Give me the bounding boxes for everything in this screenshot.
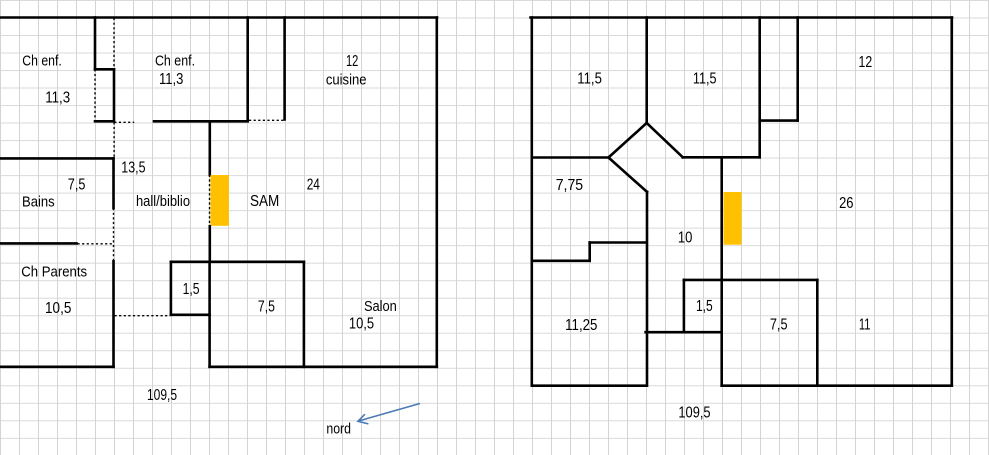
svg-text:11,5: 11,5: [693, 70, 717, 87]
svg-text:10: 10: [678, 229, 693, 246]
svg-text:7,75: 7,75: [556, 177, 583, 194]
svg-text:26: 26: [839, 195, 854, 212]
svg-text:7,5: 7,5: [258, 299, 275, 316]
svg-text:109,5: 109,5: [147, 387, 177, 404]
svg-text:7,5: 7,5: [770, 316, 788, 333]
svg-text:11,25: 11,25: [565, 317, 597, 334]
svg-text:10,5: 10,5: [349, 315, 374, 332]
svg-text:11,3: 11,3: [45, 89, 70, 106]
svg-text:Bains: Bains: [22, 194, 55, 210]
svg-text:109,5: 109,5: [678, 404, 710, 421]
svg-text:1,5: 1,5: [183, 281, 200, 298]
svg-text:nord: nord: [326, 422, 351, 438]
svg-text:Ch Parents: Ch Parents: [21, 265, 87, 281]
svg-text:12: 12: [346, 53, 358, 70]
svg-text:Salon: Salon: [364, 299, 397, 315]
svg-text:11,5: 11,5: [577, 70, 602, 87]
svg-text:Ch enf.: Ch enf.: [22, 53, 62, 69]
svg-text:11,3: 11,3: [159, 71, 184, 88]
svg-text:7,5: 7,5: [68, 177, 86, 194]
svg-text:12: 12: [859, 54, 873, 71]
svg-text:SAM: SAM: [250, 193, 279, 210]
svg-text:13,5: 13,5: [121, 159, 145, 176]
svg-text:Ch enf.: Ch enf.: [155, 54, 195, 70]
svg-text:hall/biblio: hall/biblio: [136, 194, 190, 210]
svg-text:10,5: 10,5: [45, 300, 71, 317]
svg-text:cuisine: cuisine: [326, 72, 367, 88]
svg-text:1,5: 1,5: [696, 298, 713, 315]
svg-text:11: 11: [859, 316, 871, 333]
svg-text:24: 24: [307, 176, 320, 193]
